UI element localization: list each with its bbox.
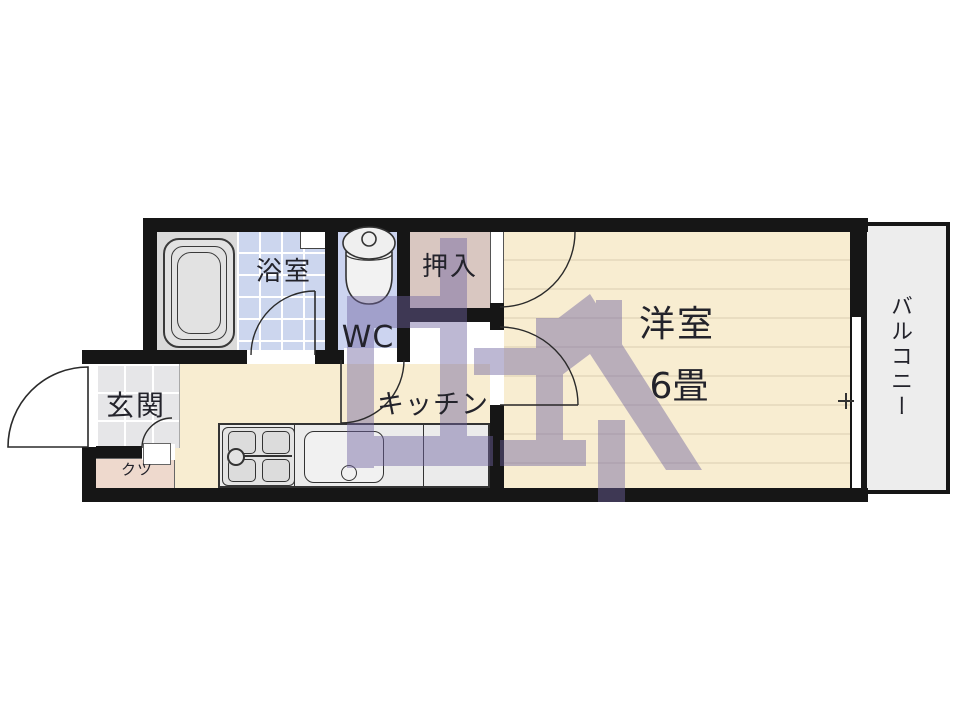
closet-door-swing	[500, 232, 575, 307]
floor-plan-canvas: 浴室 WC 押入 洋室 6畳 キッチン 玄関 クツ バルコニー	[0, 0, 960, 720]
floor-plan: 浴室 WC 押入 洋室 6畳 キッチン 玄関 クツ バルコニー	[0, 0, 960, 720]
shoe-door-swing	[142, 418, 172, 448]
kitchen-door-swing	[500, 327, 578, 405]
wc-label: WC	[342, 323, 395, 353]
bath-door-swing	[251, 291, 315, 355]
balcony-label: バルコニー	[888, 295, 910, 420]
western-room-size-label: 6畳	[650, 369, 709, 405]
closet-label: 押入	[422, 254, 478, 280]
shoe-cabinet-label: クツ	[121, 463, 153, 478]
door-arcs	[0, 0, 960, 720]
entrance-label: 玄関	[106, 392, 166, 420]
bath-label: 浴室	[256, 259, 312, 285]
western-room-label: 洋室	[639, 307, 715, 343]
entrance-door-swing	[8, 367, 88, 447]
kitchen-label: キッチン	[377, 392, 489, 419]
